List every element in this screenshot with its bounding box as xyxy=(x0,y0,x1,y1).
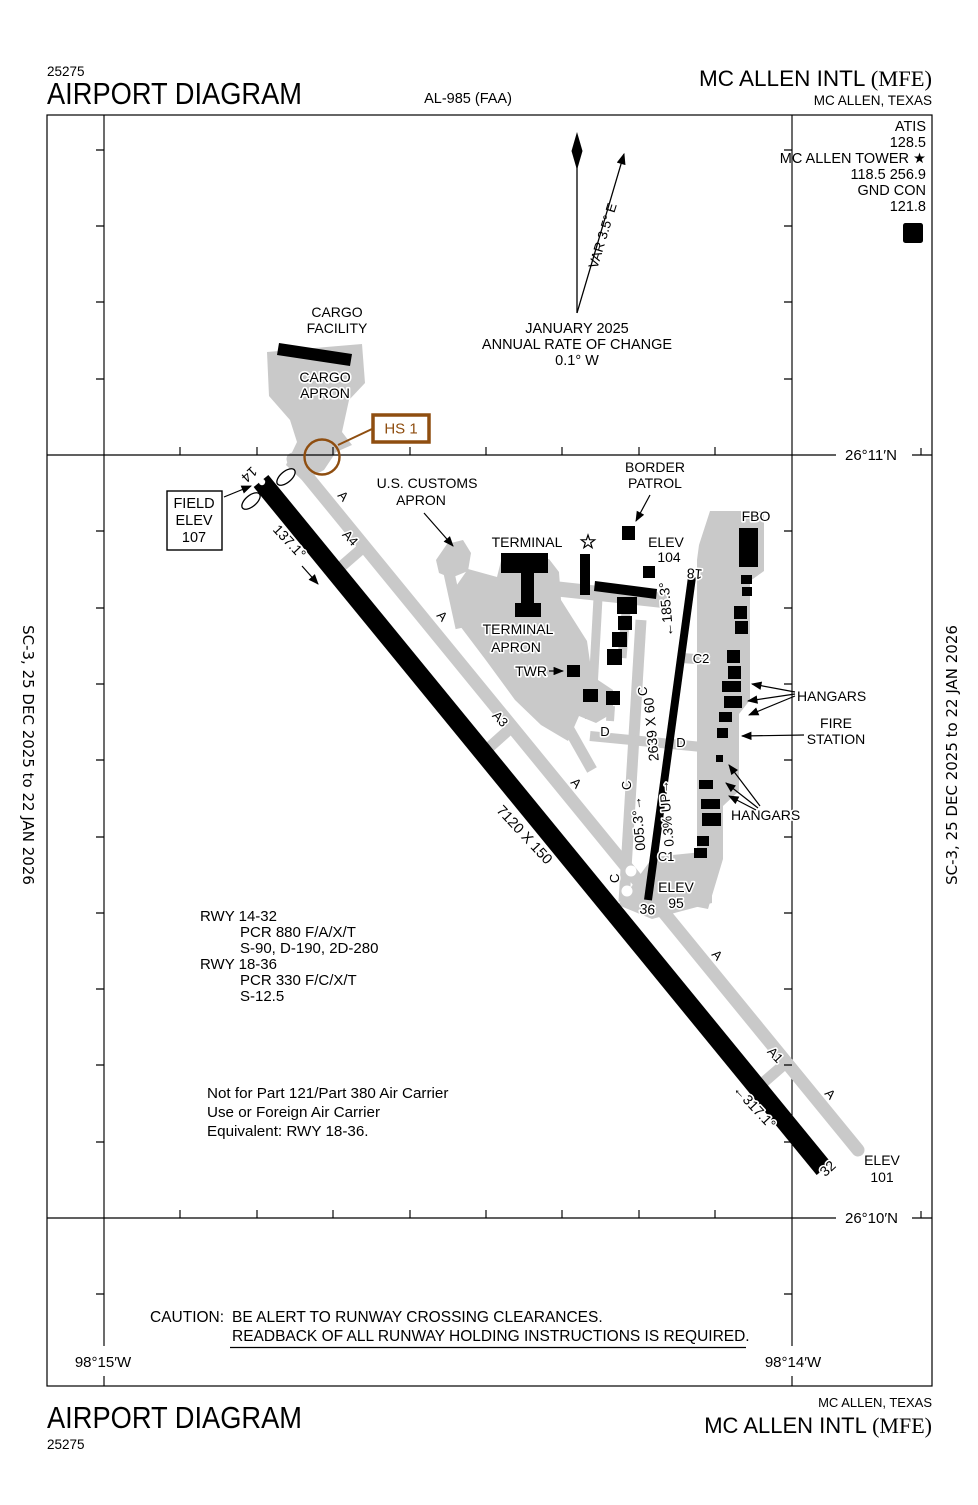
customs-apron-label-2: APRON xyxy=(396,492,446,508)
fire-station-label-1: FIRE xyxy=(820,715,852,731)
footer-chart-number: 25275 xyxy=(47,1437,85,1452)
fbo-building xyxy=(739,528,758,567)
caution-block: CAUTION: BE ALERT TO RUNWAY CROSSING CLE… xyxy=(150,1309,750,1348)
building-sq-6 xyxy=(583,689,598,702)
runway-36-id: 36 xyxy=(639,900,656,917)
notes-block: Not for Part 121/Part 380 Air Carrier Us… xyxy=(207,1085,448,1140)
terminal-apron-label-1: TERMINAL xyxy=(483,621,554,637)
fire-station-building xyxy=(717,728,728,738)
border-patrol-label-1: BORDER xyxy=(625,459,685,475)
elev-104-value: 104 xyxy=(657,549,681,565)
atis-freq: 128.5 xyxy=(890,135,926,151)
tower-label: TWR xyxy=(515,663,547,679)
hangar-13 xyxy=(702,813,721,826)
elev-104-label: ELEV xyxy=(648,534,684,550)
hangar-2 xyxy=(742,587,752,596)
hangars-top-label: HANGARS xyxy=(797,688,866,704)
note-line-2: Use or Foreign Air Carrier xyxy=(207,1104,380,1121)
procedure-code: AL-985 (FAA) xyxy=(424,91,512,107)
taxiway-c-label-1: C xyxy=(635,686,651,697)
taxiway-a-label-1: A xyxy=(335,488,352,505)
hangar-5 xyxy=(727,650,740,663)
elev-101-value: 101 xyxy=(870,1169,894,1185)
terminal-apron-link xyxy=(566,724,592,770)
rate-of-change-2: 0.1° W xyxy=(555,353,599,369)
elev-95-value: 95 xyxy=(668,895,684,911)
building-sq-5 xyxy=(607,649,622,665)
longitude-right-label: 98°14′W xyxy=(765,1354,822,1371)
hangars-bottom-label: HANGARS xyxy=(731,807,800,823)
north-arrow-group: VAR 3.5° E xyxy=(572,132,625,313)
airport-city: MC ALLEN, TEXAS xyxy=(814,93,932,108)
ground-freq: 121.8 xyxy=(890,199,926,215)
comm-frequencies: ATIS 128.5 MC ALLEN TOWER ★ 118.5 256.9 … xyxy=(780,119,926,243)
rwy1432-id-text: RWY 14-32 xyxy=(200,908,277,925)
ground-label: GND CON xyxy=(858,183,926,199)
margin-note-right: SC-3, 25 DEC 2025 to 22 JAN 2026 xyxy=(943,625,961,885)
atis-label: ATIS xyxy=(895,119,926,135)
cargo-facility-label-1: CARGO xyxy=(311,304,362,320)
tower-freq: 118.5 256.9 xyxy=(850,167,926,183)
customs-apron-label-1: U.S. CUSTOMS xyxy=(377,475,478,491)
hangar-1 xyxy=(741,575,752,584)
hangar-15 xyxy=(694,848,707,858)
field-elev-group: FIELD ELEV 107 xyxy=(167,486,251,550)
terminal-apron-label-2: APRON xyxy=(491,639,541,655)
hangars-top-arrow-1 xyxy=(752,684,795,692)
runway-14-threshold-dot xyxy=(259,479,265,485)
field-elev-l3: 107 xyxy=(182,530,206,546)
footer-airport-title: MC ALLEN INTL (MFE) xyxy=(704,1413,932,1438)
airport-diagram-sheet: 25275 AIRPORT DIAGRAM AL-985 (FAA) MC AL… xyxy=(0,0,978,1500)
taxiway-c-island-2 xyxy=(622,886,633,897)
page-title: AIRPORT DIAGRAM xyxy=(47,76,302,111)
hangar-4 xyxy=(735,621,748,634)
elev-101-label: ELEV xyxy=(864,1152,900,1168)
apron-taxiway-layer xyxy=(267,344,858,1150)
border-patrol-building xyxy=(622,526,635,540)
taxiway-c2-label: C2 xyxy=(693,651,710,666)
hold-sign-letter: D xyxy=(908,227,918,243)
field-elev-l1: FIELD xyxy=(173,496,214,512)
latitude-top-label: 26°11′N xyxy=(845,447,897,464)
caution-line-2: READBACK OF ALL RUNWAY HOLDING INSTRUCTI… xyxy=(232,1328,750,1345)
cargo-apron-label-2: APRON xyxy=(300,385,350,401)
tower-building xyxy=(567,665,580,677)
taxiway-d-label-1: D xyxy=(600,724,609,739)
rwy1432-pcr-text: PCR 880 F/A/X/T xyxy=(240,924,356,941)
elev-95-label: ELEV xyxy=(658,879,694,895)
variation-date: JANUARY 2025 xyxy=(525,321,628,337)
taxiway-c-island-1 xyxy=(626,866,637,877)
cargo-apron-shape xyxy=(267,344,365,481)
apron-stem-2 xyxy=(610,706,611,721)
runway-18-id: 18 xyxy=(686,565,703,582)
taxiway-a-label-2: A xyxy=(434,608,451,625)
field-elev-arrow xyxy=(224,486,251,497)
rwy1836-strength-text: S-12.5 xyxy=(240,988,284,1005)
note-line-3: Equivalent: RWY 18-36. xyxy=(207,1123,369,1140)
longitude-ticks-west xyxy=(96,150,104,1294)
rwy1432-strength-text: S-90, D-190, 2D-280 xyxy=(240,940,378,957)
hangar-12 xyxy=(701,799,720,809)
caution-line-1: BE ALERT TO RUNWAY CROSSING CLEARANCES. xyxy=(232,1309,603,1326)
hangar-3 xyxy=(734,606,747,619)
cargo-apron-label-1: CARGO xyxy=(299,369,350,385)
latitude-bottom-label: 26°10′N xyxy=(845,1210,898,1227)
latitude-ticks-top xyxy=(180,447,715,455)
hotspot-label: HS 1 xyxy=(384,421,417,438)
border-patrol-arrow xyxy=(636,495,650,521)
hangars-top-arrow-2 xyxy=(748,694,795,701)
rwy1836-pcr-text: PCR 330 F/C/X/T xyxy=(240,972,357,989)
airport-title: MC ALLEN INTL (MFE) xyxy=(699,66,932,91)
terminal-label: TERMINAL xyxy=(492,534,563,550)
building-bar xyxy=(580,554,590,595)
taxiway-c1-label: C1 xyxy=(658,849,675,864)
runway-1836-dimension: 2639 X 60 xyxy=(640,697,662,762)
taxiway-c-shape xyxy=(624,620,641,902)
hangar-6 xyxy=(728,666,741,679)
taxiway-c-label-3: C xyxy=(607,873,623,884)
customs-apron-arrow xyxy=(424,513,453,546)
diagram-canvas: 25275 AIRPORT DIAGRAM AL-985 (FAA) MC AL… xyxy=(0,0,978,1500)
fire-station-arrow xyxy=(742,735,804,736)
runup-loop-north xyxy=(274,466,298,489)
rwy1836-id-text: RWY 18-36 xyxy=(200,956,277,973)
beacon-star-icon xyxy=(581,535,594,548)
building-sq-7 xyxy=(606,691,620,705)
runway-36-heading: 005.3°→ xyxy=(628,796,649,852)
footer-title: AIRPORT DIAGRAM xyxy=(47,1400,302,1435)
fire-station-label-2: STATION xyxy=(807,731,866,747)
cargo-facility-label-2: FACILITY xyxy=(307,320,368,336)
true-north-diamond xyxy=(572,132,583,170)
variation-label: VAR 3.5° E xyxy=(586,201,620,270)
building-sq-2 xyxy=(617,597,637,614)
runway-18-heading: ←185.3° xyxy=(656,582,677,638)
rate-of-change-1: ANNUAL RATE OF CHANGE xyxy=(482,337,672,353)
field-elev-l2: ELEV xyxy=(175,513,212,529)
margin-note-left: SC-3, 25 DEC 2025 to 22 JAN 2026 xyxy=(19,625,37,885)
hangars-top-arrow-3 xyxy=(749,696,795,715)
caution-prefix: CAUTION: xyxy=(150,1309,224,1326)
fbo-label: FBO xyxy=(742,508,771,524)
hangar-8 xyxy=(724,696,742,708)
runway-data-block: RWY 14-32 PCR 880 F/A/X/T S-90, D-190, 2… xyxy=(200,908,378,1005)
hangar-9 xyxy=(719,712,732,722)
runup-loop-south xyxy=(239,490,263,513)
border-patrol-label-2: PATROL xyxy=(628,475,682,491)
longitude-left-label: 98°15′W xyxy=(75,1354,132,1371)
building-sq-4 xyxy=(612,632,627,647)
note-line-1: Not for Part 121/Part 380 Air Carrier xyxy=(207,1085,448,1102)
building-sq-3 xyxy=(618,616,632,630)
hangar-7 xyxy=(722,681,741,692)
footer-city: MC ALLEN, TEXAS xyxy=(818,1395,932,1410)
taxiway-c-label-2: C xyxy=(619,780,635,791)
building-sq-1 xyxy=(643,566,655,578)
runway-14-id: 14 xyxy=(238,463,260,485)
hangar-10 xyxy=(716,755,723,762)
tower-label: MC ALLEN TOWER ★ xyxy=(780,151,926,167)
runway-14-heading-arrow xyxy=(302,566,318,584)
taxiway-d-label-2: D xyxy=(676,735,685,750)
hangar-11 xyxy=(699,780,713,789)
hangar-14 xyxy=(697,836,709,846)
latitude-ticks-bottom xyxy=(180,1210,715,1218)
